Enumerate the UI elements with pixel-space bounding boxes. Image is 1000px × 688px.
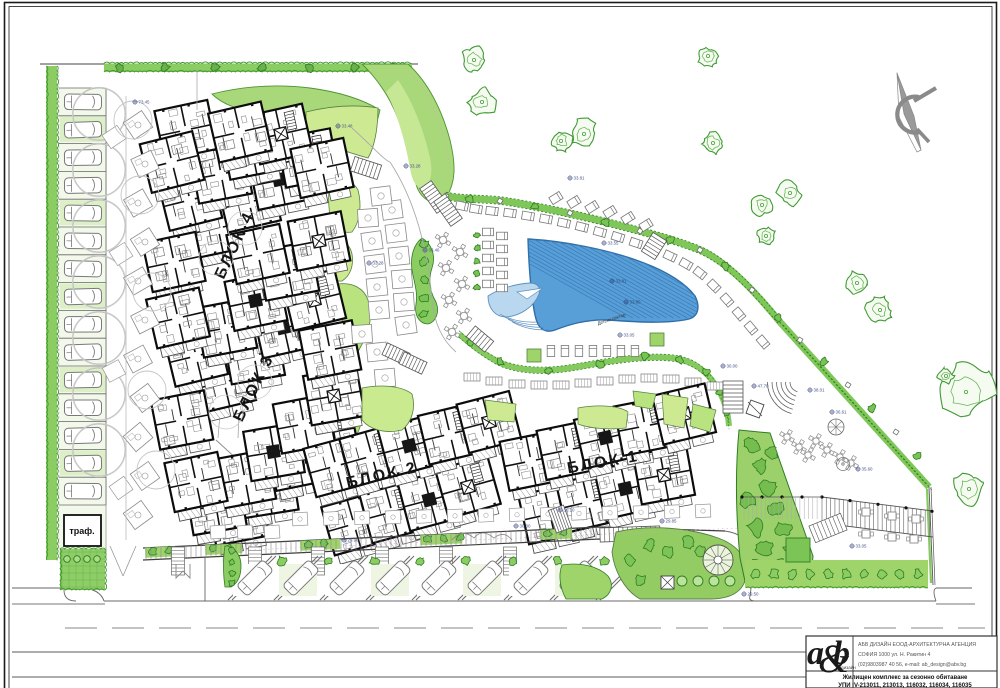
svg-text:33.55: 33.55: [608, 241, 620, 246]
svg-text:30.00: 30.00: [727, 364, 739, 369]
svg-text:29.90: 29.90: [348, 538, 360, 543]
svg-text:38.01: 38.01: [814, 388, 826, 393]
svg-text:дизайн: дизайн: [841, 664, 856, 670]
svg-text:33.05: 33.05: [856, 544, 868, 549]
svg-text:36.61: 36.61: [836, 410, 848, 415]
svg-text:33.05: 33.05: [624, 333, 636, 338]
svg-text:33.81: 33.81: [616, 279, 628, 284]
svg-text:33.80: 33.80: [630, 300, 642, 305]
svg-text:АБВ ДИЗАЙН ЕООД-АРХИТЕКТУРНА А: АБВ ДИЗАЙН ЕООД-АРХИТЕКТУРНА АГЕНЦИЯ: [858, 640, 976, 648]
svg-text:СОФИЯ 1000 ул. Н. Ракитин 4: СОФИЯ 1000 ул. Н. Ракитин 4: [858, 652, 930, 658]
svg-text:29.85: 29.85: [666, 519, 678, 524]
svg-text:35.60: 35.60: [862, 467, 874, 472]
svg-text:33.46: 33.46: [429, 248, 441, 253]
svg-text:73.45: 73.45: [139, 100, 151, 105]
svg-text:30.00: 30.00: [520, 524, 532, 529]
svg-text:47.70: 47.70: [758, 384, 770, 389]
svg-text:33.48: 33.48: [342, 124, 354, 129]
svg-text:(02)9803987 40 56, e-mail: ab_: (02)9803987 40 56, e-mail: ab_design@abv…: [858, 662, 966, 668]
svg-text:33.28: 33.28: [410, 164, 422, 169]
svg-text:29.50: 29.50: [748, 592, 760, 597]
svg-text:30.10: 30.10: [564, 508, 576, 513]
svg-text:Жилищен комплекс за сезонно об: Жилищен комплекс за сезонно обитаване: [842, 674, 968, 681]
svg-text:УПИ IV-213011, 213013, 116032,: УПИ IV-213011, 213013, 116032, 116034, 1…: [838, 683, 972, 688]
svg-text:траф.: траф.: [69, 526, 94, 536]
svg-text:33.81: 33.81: [574, 176, 586, 181]
svg-text:33.28: 33.28: [373, 261, 385, 266]
